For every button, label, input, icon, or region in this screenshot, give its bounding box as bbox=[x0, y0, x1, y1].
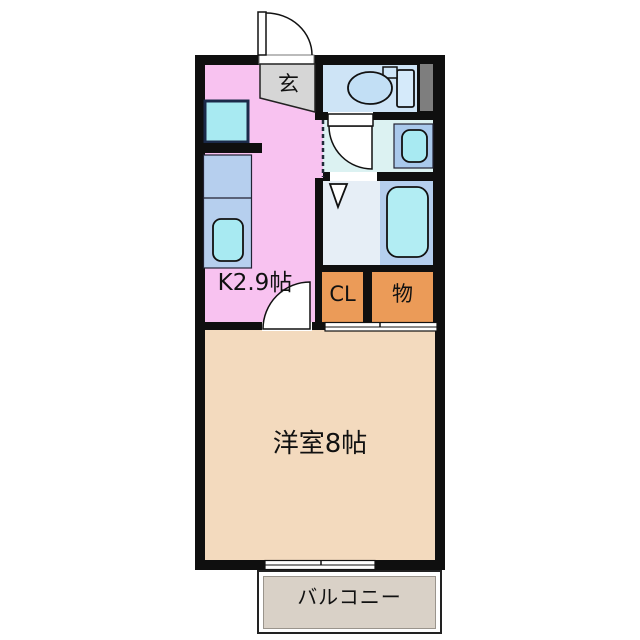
label-balcony: バルコニー bbox=[263, 587, 436, 608]
stove bbox=[205, 101, 248, 142]
closet-sliding-door bbox=[325, 322, 437, 331]
label-entrance: 玄 bbox=[262, 73, 315, 95]
entrance-door-swing bbox=[258, 12, 312, 55]
label-western-room: 洋室8帖 bbox=[205, 431, 435, 458]
label-storage: 物 bbox=[372, 283, 433, 305]
floor-plan: 玄 K2.9帖 CL 物 洋室8帖 バルコニー bbox=[0, 0, 640, 640]
wall-stub bbox=[195, 143, 262, 153]
bathtub bbox=[387, 187, 428, 257]
kitchen-sink bbox=[213, 219, 243, 261]
label-closet: CL bbox=[322, 283, 363, 305]
bathroom-folding-door bbox=[330, 172, 377, 207]
washroom-door-swing bbox=[328, 112, 373, 169]
balcony-sliding-window bbox=[265, 560, 375, 570]
toilet bbox=[348, 67, 414, 107]
label-kitchen-size: K2.9帖 bbox=[207, 271, 303, 295]
washbasin bbox=[394, 124, 433, 168]
kitchen-counter bbox=[203, 155, 252, 268]
entrance-threshold bbox=[259, 55, 314, 64]
plan-linework bbox=[0, 0, 640, 640]
